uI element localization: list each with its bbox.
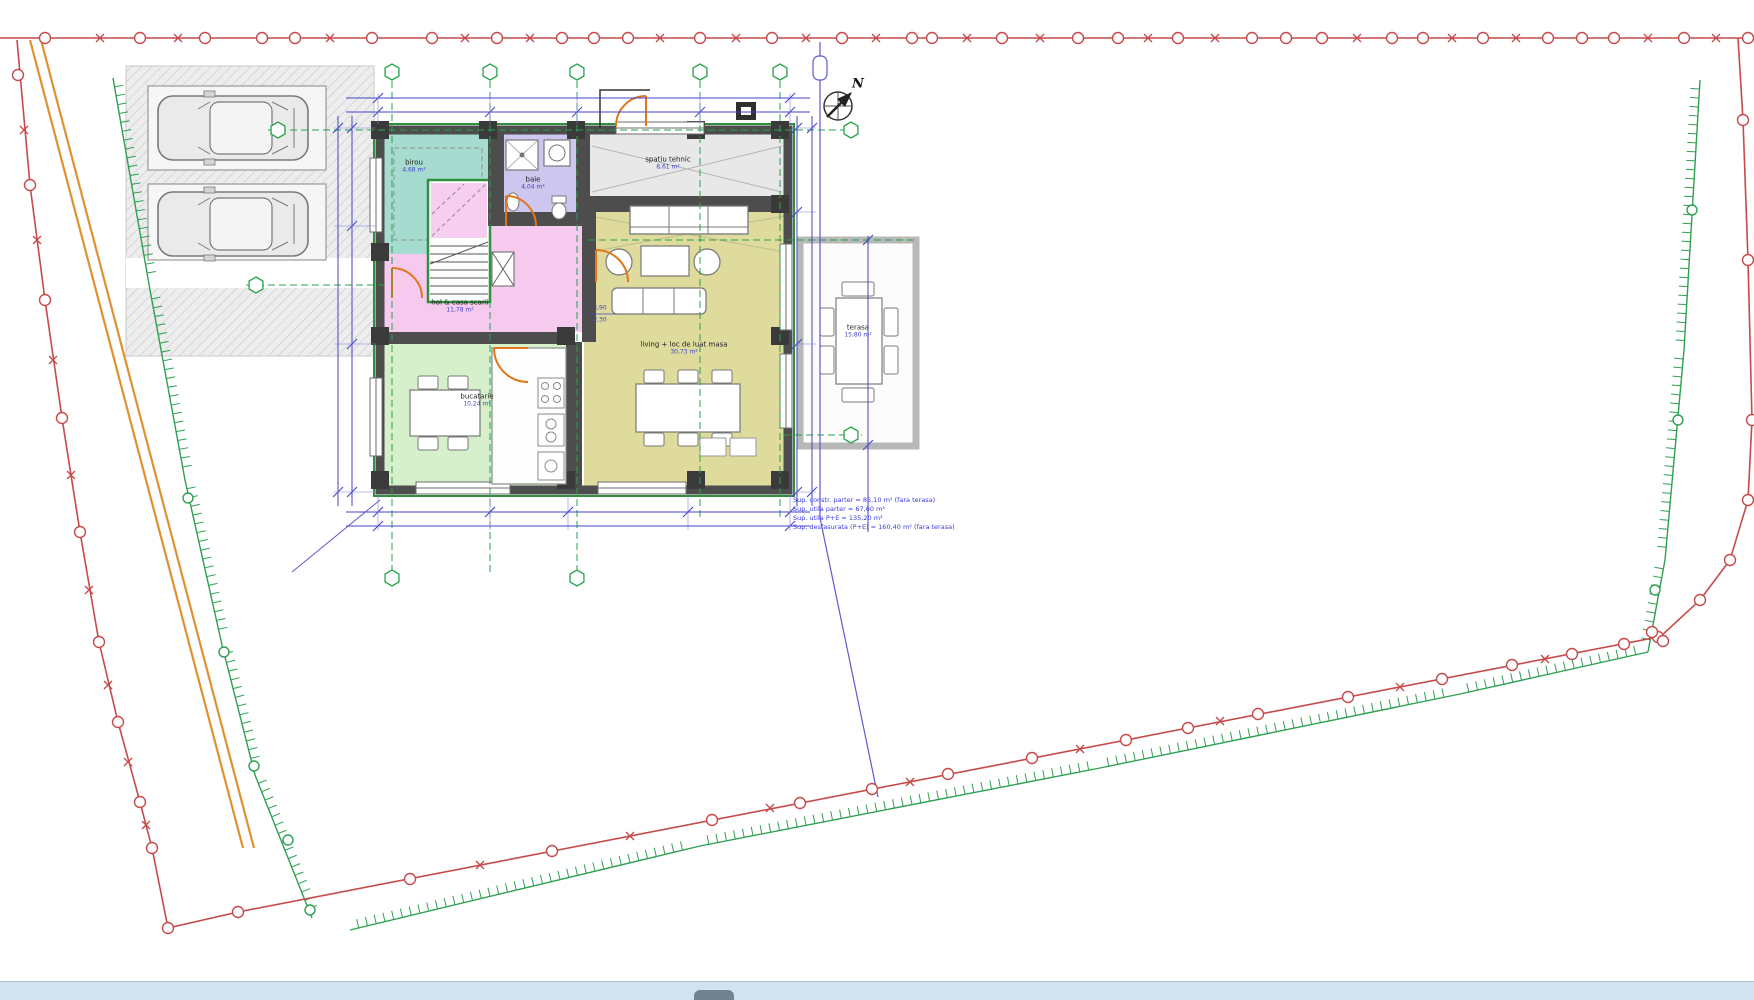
slope-hatch xyxy=(275,822,283,825)
slope-hatch xyxy=(1520,671,1522,680)
slope-hatch xyxy=(240,713,249,715)
chair xyxy=(448,376,468,389)
slope-hatch xyxy=(249,747,258,749)
slope-hatch xyxy=(523,879,525,888)
slope-marker xyxy=(249,761,259,771)
slope-hatch xyxy=(707,835,709,844)
armchair xyxy=(694,249,720,275)
slope-hatch xyxy=(1660,519,1669,520)
slope-hatch xyxy=(1239,730,1241,739)
axis-marker xyxy=(570,64,584,80)
slope-hatch xyxy=(174,421,183,423)
slope-hatch xyxy=(1336,710,1338,719)
slope-hatch xyxy=(374,915,376,924)
car-top-view xyxy=(204,159,215,165)
slope-hatch xyxy=(1686,169,1695,170)
slope-hatch xyxy=(584,865,586,874)
slope-hatch xyxy=(1407,696,1409,705)
slope-hatch xyxy=(226,660,235,662)
slope-hatch xyxy=(1442,689,1444,698)
slope-hatch xyxy=(1664,475,1673,476)
interior-wall xyxy=(566,342,582,490)
slope-hatch xyxy=(1052,768,1054,777)
slope-hatch xyxy=(178,439,187,441)
slope-hatch xyxy=(173,412,182,414)
slope-hatch xyxy=(1672,385,1681,386)
boundary-point xyxy=(1577,33,1588,44)
slope-hatch xyxy=(893,799,895,808)
boundary-point xyxy=(927,33,938,44)
boundary-point xyxy=(1609,33,1620,44)
slope-hatch xyxy=(1078,763,1080,772)
slope-hatch xyxy=(163,359,172,361)
slope-hatch xyxy=(213,601,222,603)
slope-marker xyxy=(1687,205,1697,215)
slope-hatch xyxy=(725,832,727,841)
slope-hatch xyxy=(1646,611,1655,613)
slope-hatch xyxy=(118,103,127,105)
slope-hatch xyxy=(990,780,992,789)
slope-hatch xyxy=(1398,698,1400,707)
slope-hatch xyxy=(1581,658,1583,667)
slope-hatch xyxy=(1222,734,1224,743)
slope-hatch xyxy=(875,803,877,812)
slope-marker xyxy=(1650,585,1660,595)
washing-machine xyxy=(544,140,570,166)
boundary-point xyxy=(1743,255,1754,266)
slope-hatch xyxy=(479,890,481,899)
slope-hatch xyxy=(1666,448,1675,449)
boundary-point xyxy=(1679,33,1690,44)
slope-hatch xyxy=(171,403,180,405)
slope-hatch xyxy=(1283,721,1285,730)
slope-hatch xyxy=(1648,603,1657,605)
dishwasher xyxy=(538,452,564,480)
slope-hatch xyxy=(183,465,192,467)
chair xyxy=(644,433,664,446)
slope-hatch xyxy=(203,557,212,559)
dining-table xyxy=(636,384,740,432)
slope-hatch xyxy=(251,756,260,758)
slope-hatch xyxy=(217,619,226,621)
slope-hatch xyxy=(1133,752,1135,761)
chair xyxy=(884,308,898,336)
car-top-view xyxy=(204,187,215,193)
area-summary: Sup. constr. parter = 85,10 m² (fara ter… xyxy=(793,496,955,532)
boundary-point xyxy=(290,33,301,44)
slope-hatch xyxy=(1590,656,1592,665)
column xyxy=(371,243,389,261)
boundary-point xyxy=(367,33,378,44)
area-summary-line: Sup. constr. parter = 85,10 m² (fara ter… xyxy=(793,496,955,505)
slope-hatch xyxy=(884,801,886,810)
chair xyxy=(644,370,664,383)
slope-hatch xyxy=(901,798,903,807)
slope-hatch xyxy=(1634,646,1636,655)
slope-hatch xyxy=(1680,268,1689,269)
slope-hatch xyxy=(840,810,842,819)
boundary-point xyxy=(135,797,146,808)
boundary-point xyxy=(13,70,24,81)
slope-hatch xyxy=(1668,430,1677,431)
stove xyxy=(538,378,564,408)
slope-hatch xyxy=(645,850,647,859)
boundary-point xyxy=(1173,33,1184,44)
boundary-point xyxy=(163,923,174,934)
slope-hatch xyxy=(1676,340,1685,341)
boundary-point xyxy=(1507,660,1518,671)
boundary-red xyxy=(1660,38,1752,637)
boundary-point xyxy=(1437,674,1448,685)
slope-hatch xyxy=(1371,703,1373,712)
slope-hatch xyxy=(1178,743,1180,752)
boundary-point xyxy=(147,843,158,854)
area-summary-line: Sup. utila P+E = 135,20 m² xyxy=(793,514,955,523)
slope-hatch xyxy=(593,862,595,871)
slope-hatch xyxy=(1673,367,1682,368)
shower-drain xyxy=(520,153,525,158)
slope-hatch xyxy=(409,907,411,916)
slope-hatch xyxy=(357,919,359,928)
boundary-point xyxy=(907,33,918,44)
slope-hatch xyxy=(1689,106,1698,107)
slope-hatch xyxy=(1671,394,1680,395)
boundary-point xyxy=(1743,495,1754,506)
slope-hatch xyxy=(567,869,569,878)
slope-hatch xyxy=(1678,304,1687,305)
boundary-point xyxy=(40,33,51,44)
slope-hatch xyxy=(1007,777,1009,786)
slope-hatch xyxy=(231,678,240,680)
slope-hatch xyxy=(258,780,266,783)
slope-hatch xyxy=(1682,232,1691,233)
slope-hatch xyxy=(1681,250,1690,251)
chair xyxy=(712,370,732,383)
slope-hatch xyxy=(787,820,789,829)
slope-hatch xyxy=(1607,652,1609,661)
slope-hatch xyxy=(235,695,244,697)
boundary-point xyxy=(695,33,706,44)
slope-hatch xyxy=(619,856,621,865)
slope-marker xyxy=(283,835,293,845)
slope-hatch xyxy=(1142,750,1144,759)
axis-marker xyxy=(844,427,858,443)
slope-hatch xyxy=(181,457,190,459)
chair xyxy=(842,388,874,402)
slope-hatch xyxy=(505,883,507,892)
slope-hatch xyxy=(514,881,516,890)
axis-marker xyxy=(249,277,263,293)
slope-hatch xyxy=(1248,728,1250,737)
slope-hatch xyxy=(1380,701,1382,710)
chair xyxy=(418,376,438,389)
slope-hatch xyxy=(1151,748,1153,757)
slope-hatch xyxy=(1266,725,1268,734)
slope-hatch xyxy=(268,805,276,808)
slope-hatch xyxy=(272,813,280,816)
slope-hatch xyxy=(1204,737,1206,746)
slope-hatch xyxy=(1416,694,1418,703)
line-marker xyxy=(813,56,827,80)
dimension-label: 2,30 xyxy=(593,317,606,324)
slope-hatch xyxy=(435,900,437,909)
property-line-blue xyxy=(292,500,380,572)
boundary-point xyxy=(257,33,268,44)
taskbar-handle[interactable] xyxy=(694,990,734,1000)
slope-hatch xyxy=(831,811,833,820)
slope-hatch xyxy=(1275,723,1277,732)
chair xyxy=(842,282,874,296)
slope-hatch xyxy=(1087,761,1089,770)
slope-hatch xyxy=(1657,546,1666,547)
slope-hatch xyxy=(1363,705,1365,714)
slope-hatch xyxy=(207,575,216,577)
slope-hatch xyxy=(1169,745,1171,754)
slope-hatch xyxy=(278,830,286,833)
slope-hatch xyxy=(1537,668,1539,677)
chair xyxy=(418,437,438,450)
slope-hatch xyxy=(1667,439,1676,440)
slope-hatch xyxy=(946,789,948,798)
slope-hatch xyxy=(201,548,210,550)
boundary-point xyxy=(1247,33,1258,44)
slope-marker xyxy=(305,905,315,915)
slope-hatch xyxy=(1687,151,1696,152)
boundary-point xyxy=(1343,692,1354,703)
step xyxy=(730,438,756,456)
slope-hatch xyxy=(663,846,665,855)
slope-hatch xyxy=(804,816,806,825)
slope-hatch xyxy=(857,806,859,815)
slope-hatch xyxy=(427,902,429,911)
boundary-point xyxy=(1738,115,1749,126)
slope-hatch xyxy=(848,808,850,817)
slope-hatch xyxy=(116,94,125,96)
slope-hatch xyxy=(418,904,420,913)
slope-hatch xyxy=(1160,746,1162,755)
slope-hatch xyxy=(1555,664,1557,673)
axis-marker xyxy=(483,64,497,80)
site-plan-page: birou 4,68 m² baie 4,04 m² spatiu tehnic… xyxy=(0,0,1754,1000)
slope-hatch xyxy=(866,804,868,813)
boundary-point xyxy=(1743,33,1754,44)
slope-hatch xyxy=(1467,683,1469,692)
slope-hatch xyxy=(716,834,718,843)
slope-hatch xyxy=(168,386,177,388)
boundary-point xyxy=(557,33,568,44)
slope-hatch xyxy=(462,894,464,903)
slope-hatch xyxy=(778,822,780,831)
slope-hatch xyxy=(197,531,206,533)
slope-hatch xyxy=(1563,662,1565,671)
slope-hatch xyxy=(1677,322,1686,323)
slope-hatch xyxy=(1670,403,1679,404)
slope-hatch xyxy=(1664,466,1673,467)
slope-hatch xyxy=(1528,670,1530,679)
axis-marker xyxy=(385,64,399,80)
boundary-point xyxy=(75,527,86,538)
chair xyxy=(820,346,834,374)
slope-hatch xyxy=(910,796,912,805)
slope-hatch xyxy=(1319,714,1321,723)
slope-hatch xyxy=(179,448,188,450)
slope-hatch xyxy=(602,860,604,869)
slope-hatch xyxy=(1327,712,1329,721)
north-label: N xyxy=(852,77,864,92)
slope-hatch xyxy=(680,841,682,850)
taskbar-edge xyxy=(0,981,1754,1000)
slope-hatch xyxy=(1686,160,1695,161)
slope-hatch xyxy=(170,395,179,397)
slope-hatch xyxy=(1682,223,1691,224)
boundary-point xyxy=(1281,33,1292,44)
slope-hatch xyxy=(813,815,815,824)
slope-hatch xyxy=(928,792,930,801)
column xyxy=(371,327,389,345)
chair xyxy=(884,346,898,374)
slope-hatch xyxy=(1213,736,1215,745)
slope-hatch xyxy=(1669,412,1678,413)
slope-hatch xyxy=(1301,718,1303,727)
slope-hatch xyxy=(1690,88,1699,89)
slope-hatch xyxy=(246,739,255,741)
axis-marker xyxy=(844,122,858,138)
slope-hatch xyxy=(575,867,577,876)
boundary-point xyxy=(1073,33,1084,44)
column xyxy=(687,471,705,489)
slope-hatch xyxy=(1025,773,1027,782)
slope-hatch xyxy=(628,854,630,863)
axis-marker xyxy=(570,570,584,586)
boundary-point xyxy=(1183,723,1194,734)
slope-hatch xyxy=(1310,716,1312,725)
slope-hatch xyxy=(1599,654,1601,663)
slope-hatch xyxy=(654,848,656,857)
boundary-point xyxy=(1387,33,1398,44)
boundary-point xyxy=(40,295,51,306)
slope-hatch xyxy=(742,829,744,838)
slope-hatch xyxy=(205,566,214,568)
slope-hatch xyxy=(1685,187,1694,188)
slope-hatch xyxy=(242,721,251,723)
boundary-point xyxy=(1725,555,1736,566)
area-summary-line: Sup. desfasurata (P+E) = 160,40 m² (fara… xyxy=(793,523,955,532)
slope-hatch xyxy=(1687,142,1696,143)
slope-hatch xyxy=(1688,124,1697,125)
slope-hatch xyxy=(262,788,270,791)
slope-hatch xyxy=(392,911,394,920)
chair xyxy=(678,370,698,383)
slope-hatch xyxy=(1679,277,1688,278)
slope-hatch xyxy=(1345,708,1347,717)
terrace-table xyxy=(836,298,882,384)
slope-hatch xyxy=(229,669,238,671)
slope-hatch xyxy=(176,430,185,432)
slope-hatch xyxy=(1616,650,1618,659)
slope-hatch xyxy=(1658,537,1667,538)
slope-hatch xyxy=(1660,511,1669,512)
boundary-point xyxy=(1647,627,1658,638)
boundary-point xyxy=(1747,415,1754,426)
slope-hatch xyxy=(1663,484,1672,485)
slope-hatch xyxy=(637,852,639,861)
slope-hatch xyxy=(218,627,227,629)
slope-hatch xyxy=(215,610,224,612)
slope-hatch xyxy=(734,830,736,839)
slope-hatch xyxy=(193,513,202,515)
slope-hatch xyxy=(1665,457,1674,458)
slope-hatch xyxy=(1653,576,1662,578)
slope-hatch xyxy=(302,889,310,892)
boundary-point xyxy=(707,815,718,826)
boundary-point xyxy=(943,769,954,780)
boundary-point xyxy=(1113,33,1124,44)
boundary-point xyxy=(767,33,778,44)
slope-hatch xyxy=(1659,528,1668,529)
slope-hatch xyxy=(937,791,939,800)
boundary-point xyxy=(57,413,68,424)
boundary-point xyxy=(25,180,36,191)
car-top-view xyxy=(204,91,215,97)
slope-hatch xyxy=(963,785,965,794)
slope-hatch xyxy=(672,844,674,853)
slope-hatch xyxy=(265,797,273,800)
slope-hatch xyxy=(1230,732,1232,741)
slope-hatch xyxy=(1493,677,1495,686)
boundary-point xyxy=(1418,33,1429,44)
boundary-point xyxy=(1478,33,1489,44)
slope-marker xyxy=(1673,415,1683,425)
slope-hatch xyxy=(233,686,242,688)
car-top-view xyxy=(204,255,215,261)
slope-hatch xyxy=(1546,666,1548,675)
slope-hatch xyxy=(549,873,551,882)
slope-hatch xyxy=(488,888,490,897)
slope-hatch xyxy=(383,913,385,922)
slope-hatch xyxy=(1107,757,1109,766)
slope-hatch xyxy=(298,880,306,883)
slope-hatch xyxy=(558,871,560,880)
slope-hatch xyxy=(751,827,753,836)
interior-wall xyxy=(488,130,504,226)
boundary-point xyxy=(547,846,558,857)
sofa xyxy=(612,288,706,314)
slope-hatch xyxy=(209,583,218,585)
slope-hatch xyxy=(238,704,247,706)
boundary-point xyxy=(405,874,416,885)
slope-hatch xyxy=(1043,770,1045,779)
toilet xyxy=(552,196,566,203)
boundary-point xyxy=(1695,595,1706,606)
column xyxy=(557,327,575,345)
slope-hatch xyxy=(1257,727,1259,736)
interior-wall xyxy=(378,332,574,344)
slope-hatch xyxy=(1662,493,1671,494)
car-top-view xyxy=(210,198,272,250)
boundary-point xyxy=(492,33,503,44)
window-unit xyxy=(630,206,748,234)
chimney xyxy=(741,107,751,115)
slope-hatch xyxy=(1125,754,1127,763)
slope-hatch xyxy=(115,85,124,87)
boundary-point xyxy=(997,33,1008,44)
slope-hatch xyxy=(199,540,208,542)
slope-hatch xyxy=(1572,660,1574,669)
slope-hatch xyxy=(497,886,499,895)
slope-hatch xyxy=(954,787,956,796)
boundary-point xyxy=(1253,709,1264,720)
slope-hatch xyxy=(1292,719,1294,728)
